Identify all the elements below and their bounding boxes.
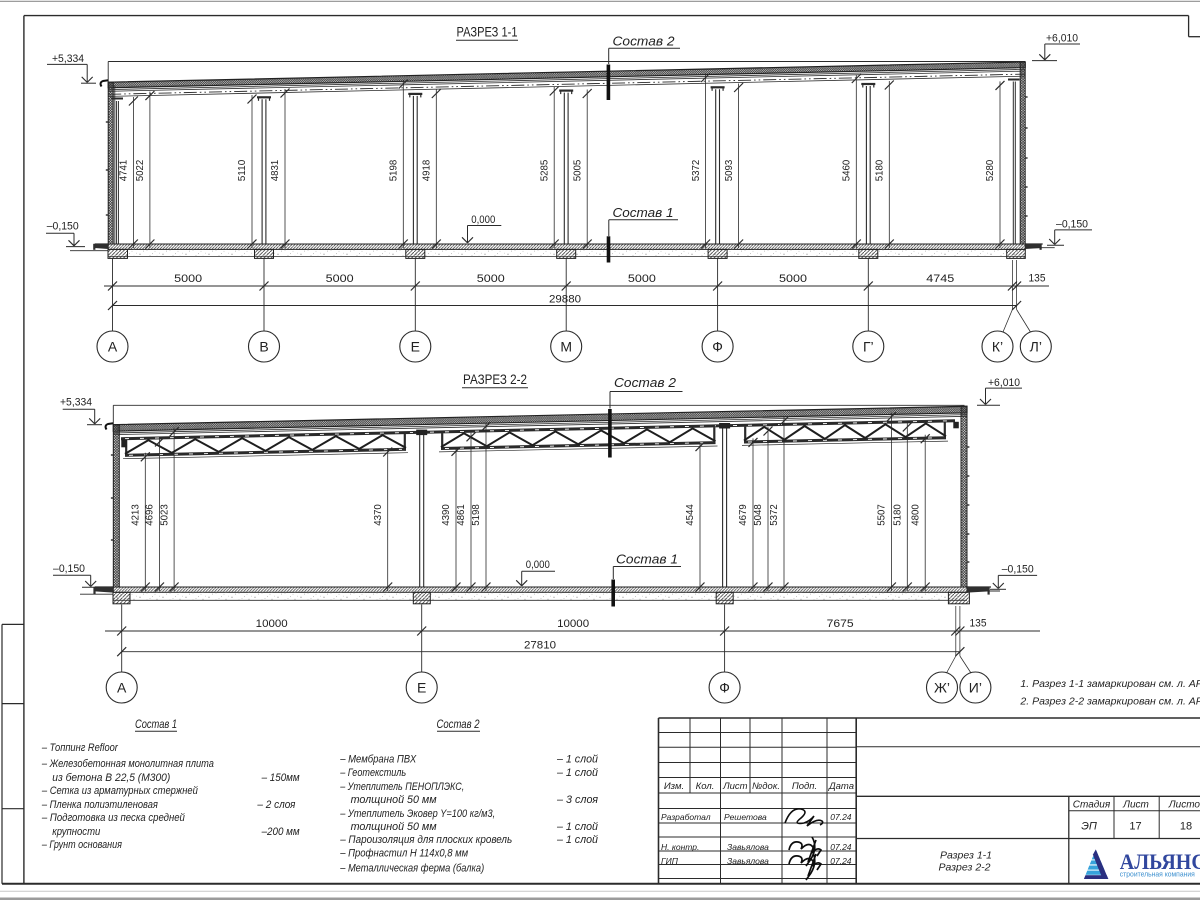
svg-text:5110: 5110 <box>237 159 248 181</box>
svg-text:5198: 5198 <box>389 159 400 181</box>
svg-text:– Металлическая ферма (балка): – Металлическая ферма (балка) <box>339 862 484 874</box>
svg-text:– Профнастил Н 114х0,8 мм: – Профнастил Н 114х0,8 мм <box>339 847 468 859</box>
svg-text:– 2 слоя: – 2 слоя <box>256 799 295 811</box>
svg-text:Состав 2: Состав 2 <box>614 376 676 390</box>
svg-text:4861: 4861 <box>456 504 467 526</box>
svg-text:18: 18 <box>1180 821 1192 833</box>
svg-text:Решетова: Решетова <box>724 812 767 822</box>
svg-text:– 150мм: – 150мм <box>261 772 300 784</box>
svg-text:Ф: Ф <box>712 339 723 355</box>
svg-text:07.24: 07.24 <box>830 856 852 866</box>
svg-text:– 3 слоя: – 3 слоя <box>556 794 598 806</box>
svg-text:ЭП: ЭП <box>1081 821 1097 833</box>
svg-text:–200 мм: –200 мм <box>261 826 300 838</box>
svg-text:строительная компания: строительная компания <box>1120 870 1195 879</box>
svg-text:И’: И’ <box>969 680 982 696</box>
svg-text:Кол.: Кол. <box>696 781 715 792</box>
svg-text:М: М <box>560 339 572 355</box>
svg-text:Состав 1: Состав 1 <box>135 717 177 731</box>
svg-text:5280: 5280 <box>985 159 996 181</box>
svg-text:5460: 5460 <box>842 159 853 181</box>
svg-text:– Пароизоляция для плоских кр: – Пароизоляция для плоских кровель <box>339 834 512 846</box>
svg-text:5000: 5000 <box>477 273 505 285</box>
svg-text:4679: 4679 <box>738 504 749 526</box>
svg-text:5000: 5000 <box>174 273 202 285</box>
svg-text:Е: Е <box>411 339 420 355</box>
svg-text:В: В <box>259 339 268 355</box>
svg-text:135: 135 <box>1029 273 1046 285</box>
svg-text:4390: 4390 <box>441 504 452 526</box>
svg-text:4918: 4918 <box>422 159 433 181</box>
svg-text:Лист: Лист <box>722 781 748 792</box>
svg-text:Ф: Ф <box>719 680 730 696</box>
svg-text:17: 17 <box>1129 821 1141 833</box>
svg-text:–0,150: –0,150 <box>1002 564 1034 576</box>
svg-text:Завьялова: Завьялова <box>727 842 769 852</box>
svg-text:5000: 5000 <box>326 273 354 285</box>
svg-text:07.24: 07.24 <box>830 842 852 852</box>
svg-text:5000: 5000 <box>779 273 807 285</box>
svg-text:–0,150: –0,150 <box>53 563 85 575</box>
svg-text:4213: 4213 <box>131 504 142 526</box>
svg-text:РАЗРЕЗ 2-2: РАЗРЕЗ 2-2 <box>463 372 527 387</box>
svg-text:– Подготовка из песка средней: – Подготовка из песка средней <box>41 812 185 824</box>
svg-text:– 1 слой: – 1 слой <box>556 753 598 765</box>
svg-text:Завьялова: Завьялова <box>727 856 769 866</box>
svg-text:А: А <box>108 339 118 355</box>
svg-text:4696: 4696 <box>145 504 156 526</box>
svg-text:5005: 5005 <box>572 159 583 181</box>
svg-text:5048: 5048 <box>753 504 764 526</box>
svg-text:– Грунт основания: – Грунт основания <box>41 839 122 851</box>
svg-text:5372: 5372 <box>769 504 780 526</box>
svg-text:Ж’: Ж’ <box>934 680 950 696</box>
svg-text:ГИП: ГИП <box>661 856 679 866</box>
svg-text:Состав 1: Состав 1 <box>616 553 678 567</box>
svg-text:5180: 5180 <box>875 159 886 181</box>
svg-text:4370: 4370 <box>373 504 384 526</box>
svg-text:– Топпинг Refloor: – Топпинг Refloor <box>41 742 119 754</box>
svg-text:Листов: Листов <box>1168 800 1200 811</box>
svg-text:– Утеплитель Эковер Y=100 кг/: – Утеплитель Эковер Y=100 кг/м3, <box>339 808 495 820</box>
svg-text:5000: 5000 <box>628 273 656 285</box>
svg-text:+5,334: +5,334 <box>52 53 84 65</box>
svg-text:– Мембрана ПВХ: – Мембрана ПВХ <box>339 753 416 765</box>
svg-text:– Железобетонная монолитная: – Железобетонная монолитная плита <box>41 758 214 770</box>
svg-text:– 1 слой: – 1 слой <box>556 767 598 779</box>
svg-text:5507: 5507 <box>877 504 888 526</box>
svg-text:29880: 29880 <box>549 294 581 306</box>
svg-text:из бетона В 22,5 (М300): из бетона В 22,5 (М300) <box>52 772 170 784</box>
svg-text:Е: Е <box>417 680 426 696</box>
svg-text:Изм.: Изм. <box>664 781 684 792</box>
svg-text:27810: 27810 <box>524 640 556 652</box>
svg-text:07.24: 07.24 <box>830 812 852 822</box>
svg-text:+6,010: +6,010 <box>1046 33 1078 45</box>
svg-text:– Утеплитель ПЕНОПЛЭКС,: – Утеплитель ПЕНОПЛЭКС, <box>339 781 464 793</box>
svg-text:4800: 4800 <box>910 504 921 526</box>
svg-text:4831: 4831 <box>270 159 281 181</box>
svg-text:5372: 5372 <box>691 159 702 181</box>
svg-text:– Сетка из арматурных стержне: – Сетка из арматурных стержней <box>41 785 198 797</box>
svg-text:РАЗРЕЗ 1-1: РАЗРЕЗ 1-1 <box>457 25 518 40</box>
svg-text:Состав 2: Состав 2 <box>613 35 675 49</box>
svg-text:135: 135 <box>970 618 987 630</box>
svg-text:А: А <box>117 680 127 696</box>
svg-text:крупности: крупности <box>52 826 100 838</box>
svg-text:–0,150: –0,150 <box>1056 219 1088 231</box>
svg-text:– Пленка полиэтиленовая: – Пленка полиэтиленовая <box>41 799 158 811</box>
svg-text:4544: 4544 <box>685 504 696 526</box>
svg-text:№док.: №док. <box>752 781 780 792</box>
svg-text:7675: 7675 <box>827 618 854 630</box>
svg-text:Лист: Лист <box>1122 800 1149 811</box>
svg-text:Г’: Г’ <box>863 339 874 355</box>
svg-text:1. Разрез 1-1 замаркирован см.: 1. Разрез 1-1 замаркирован см. л. АР-19 <box>1020 678 1200 690</box>
svg-text:– 1 слой: – 1 слой <box>556 821 598 833</box>
svg-text:толщиной 50 мм: толщиной 50 мм <box>351 794 437 806</box>
svg-text:толщиной 50 мм: толщиной 50 мм <box>351 821 437 833</box>
svg-text:2. Разрез 2-2 замаркирован см.: 2. Разрез 2-2 замаркирован см. л. АР-2 <box>1019 696 1200 708</box>
svg-text:4745: 4745 <box>926 273 954 285</box>
svg-text:5022: 5022 <box>135 159 146 181</box>
svg-text:Н. контр.: Н. контр. <box>661 842 699 852</box>
svg-text:Разработал: Разработал <box>661 812 711 822</box>
svg-text:5023: 5023 <box>159 504 170 526</box>
svg-text:Разрез 2-2: Разрез 2-2 <box>938 862 990 874</box>
svg-text:Состав 2: Состав 2 <box>437 717 480 731</box>
svg-text:+5,334: +5,334 <box>60 397 92 409</box>
svg-text:Подп.: Подп. <box>792 781 817 792</box>
svg-text:Разрез 1-1: Разрез 1-1 <box>940 850 992 862</box>
svg-text:5198: 5198 <box>471 504 482 526</box>
svg-text:Дата: Дата <box>828 781 854 792</box>
svg-text:5093: 5093 <box>724 159 735 181</box>
svg-text:0,000: 0,000 <box>471 214 495 226</box>
svg-text:Стадия: Стадия <box>1073 800 1111 811</box>
svg-text:5180: 5180 <box>893 504 904 526</box>
svg-text:–0,150: –0,150 <box>47 221 79 233</box>
svg-text:5285: 5285 <box>539 159 550 181</box>
svg-text:10000: 10000 <box>557 618 589 630</box>
svg-text:Л’: Л’ <box>1030 339 1042 355</box>
svg-text:10000: 10000 <box>256 618 288 630</box>
svg-text:4741: 4741 <box>119 159 130 181</box>
svg-text:Состав 1: Состав 1 <box>613 206 674 220</box>
svg-text:К’: К’ <box>992 339 1003 355</box>
svg-text:– Геотекстиль: – Геотекстиль <box>339 767 406 779</box>
svg-text:+6,010: +6,010 <box>988 377 1020 389</box>
svg-text:0,000: 0,000 <box>526 559 550 571</box>
svg-text:– 1 слой: – 1 слой <box>556 834 598 846</box>
